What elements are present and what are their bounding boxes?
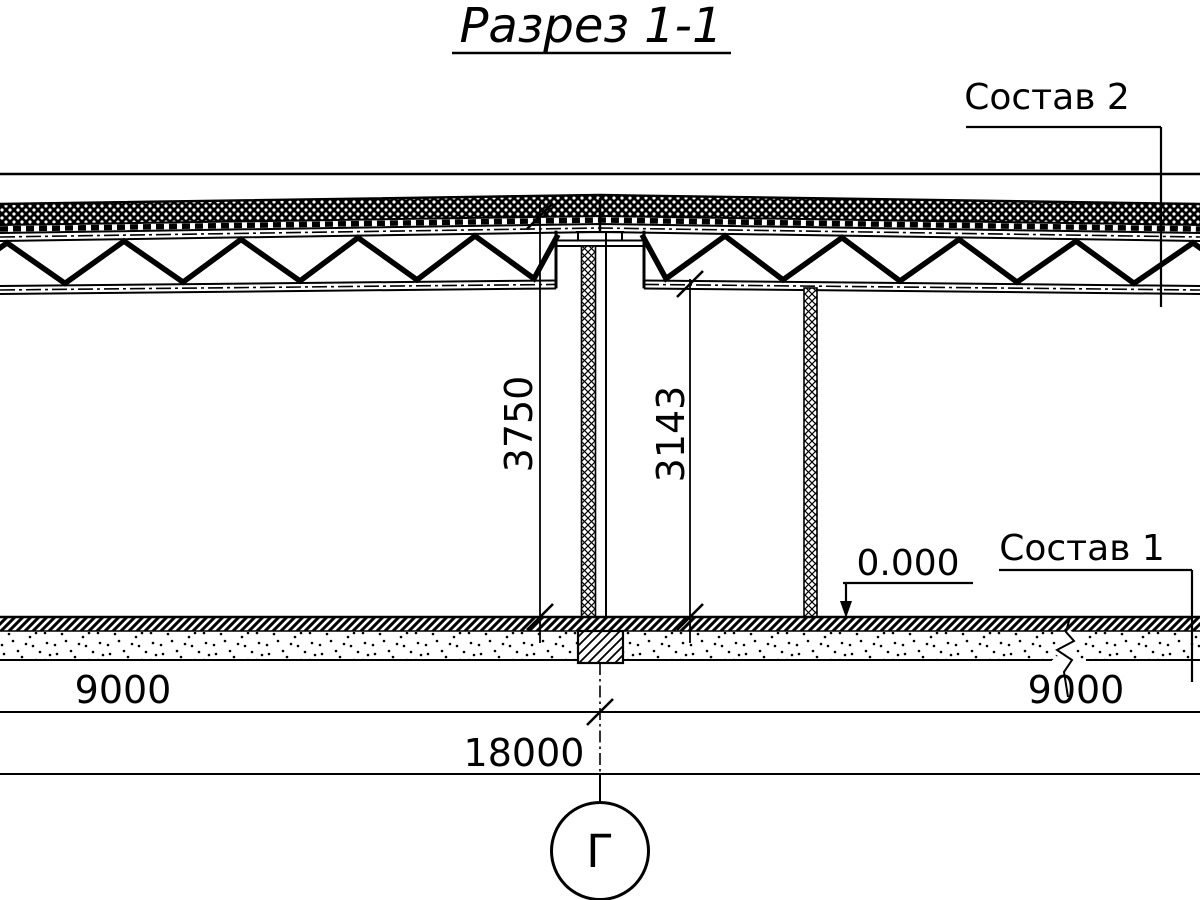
right-column bbox=[804, 288, 817, 617]
dim-total-span: 18000 bbox=[464, 731, 585, 775]
section-drawing: Разрез 1-1 Состав 2 Состав 1 0.000 3750 … bbox=[0, 0, 1200, 900]
label-roof-composition: Состав 2 bbox=[964, 77, 1130, 118]
dim-bay-right: 9000 bbox=[1028, 668, 1125, 712]
page-title: Разрез 1-1 bbox=[459, 0, 722, 54]
axis-letter: Г bbox=[586, 825, 613, 878]
foundation-block bbox=[578, 631, 623, 663]
dim-truss-clearance: 3143 bbox=[649, 386, 693, 483]
elevation-arrowhead bbox=[840, 601, 852, 618]
drawing-sheet: Разрез 1-1 Состав 2 Состав 1 0.000 3750 … bbox=[0, 0, 1200, 900]
truss-web-diagonals bbox=[0, 235, 558, 285]
generated-geometry bbox=[0, 127, 1200, 900]
floor-slab-band bbox=[0, 617, 1200, 631]
elevation-value: 0.000 bbox=[856, 543, 959, 584]
dim-bay-left: 9000 bbox=[75, 668, 172, 712]
label-floor-composition: Состав 1 bbox=[999, 528, 1165, 569]
dim-apex-height: 3750 bbox=[497, 376, 541, 473]
truss-web-diagonals bbox=[642, 235, 1200, 285]
center-column-flange bbox=[582, 246, 596, 617]
